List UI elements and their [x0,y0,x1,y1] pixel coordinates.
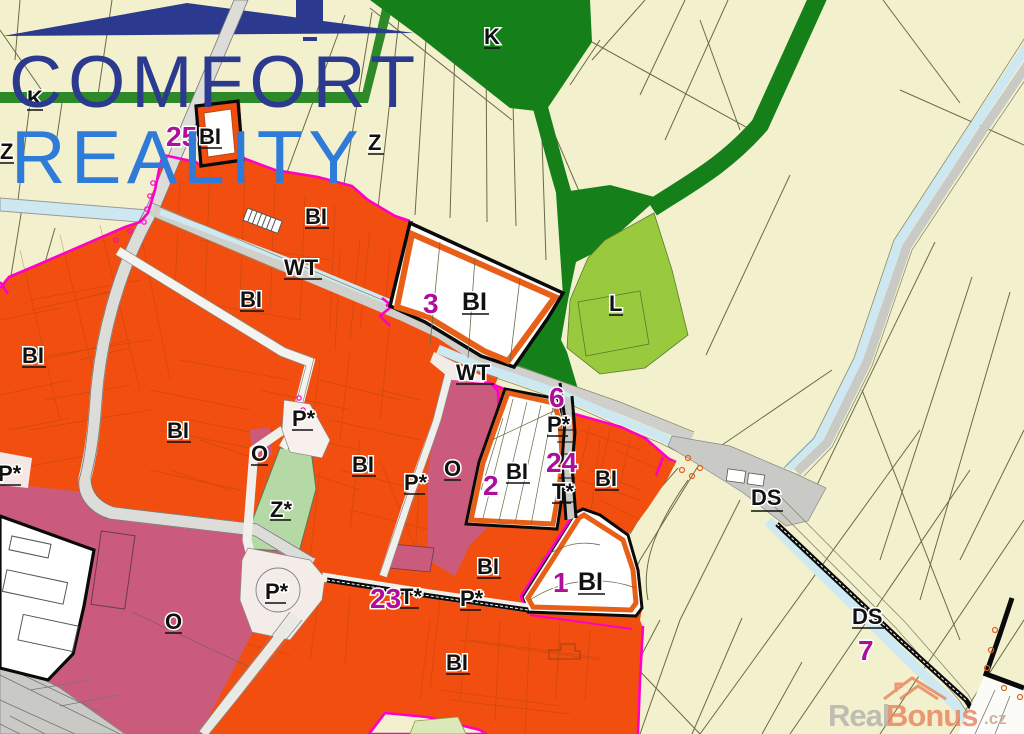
svg-text:BI: BI [477,554,499,579]
svg-text:BI: BI [446,650,468,675]
svg-text:Bonus: Bonus [886,698,977,733]
svg-text:P*: P* [547,412,571,437]
svg-text:23: 23 [370,583,401,614]
svg-text:DS: DS [852,604,883,629]
svg-text:7: 7 [858,635,874,666]
svg-text:BI: BI [462,288,487,316]
svg-text:O: O [165,609,182,634]
svg-text:BI: BI [595,466,617,491]
svg-text:WT: WT [456,360,491,385]
svg-text:6: 6 [549,382,565,413]
svg-text:P*: P* [0,461,22,486]
svg-text:COMFORT: COMFORT [9,40,421,123]
svg-text:WT: WT [284,255,319,280]
svg-text:DS: DS [751,485,782,510]
svg-text:24: 24 [546,447,578,478]
svg-text:BI: BI [167,418,189,443]
svg-text:BI: BI [578,568,603,596]
svg-text:O: O [444,456,461,481]
svg-text:P*: P* [265,579,289,604]
svg-text:Z*: Z* [270,497,292,522]
svg-text:Real: Real [828,698,889,733]
svg-text:BI: BI [240,287,262,312]
svg-text:T*: T* [400,584,422,609]
svg-text:P*: P* [460,586,484,611]
svg-text:BI: BI [22,343,44,368]
svg-text:2: 2 [483,470,499,501]
svg-text:T*: T* [552,479,574,504]
svg-text:BI: BI [506,459,528,484]
svg-text:P*: P* [292,406,316,431]
svg-text:3: 3 [423,288,439,319]
svg-text:.cz: .cz [984,709,1007,728]
svg-text:Z: Z [368,130,381,155]
svg-text:L: L [609,291,622,316]
svg-text:REALITY: REALITY [11,115,364,199]
svg-text:K: K [484,24,500,49]
svg-text:BI: BI [305,204,327,229]
svg-text:1: 1 [553,567,569,598]
svg-text:BI: BI [352,452,374,477]
svg-text:P*: P* [404,470,428,495]
svg-text:O: O [251,441,268,466]
